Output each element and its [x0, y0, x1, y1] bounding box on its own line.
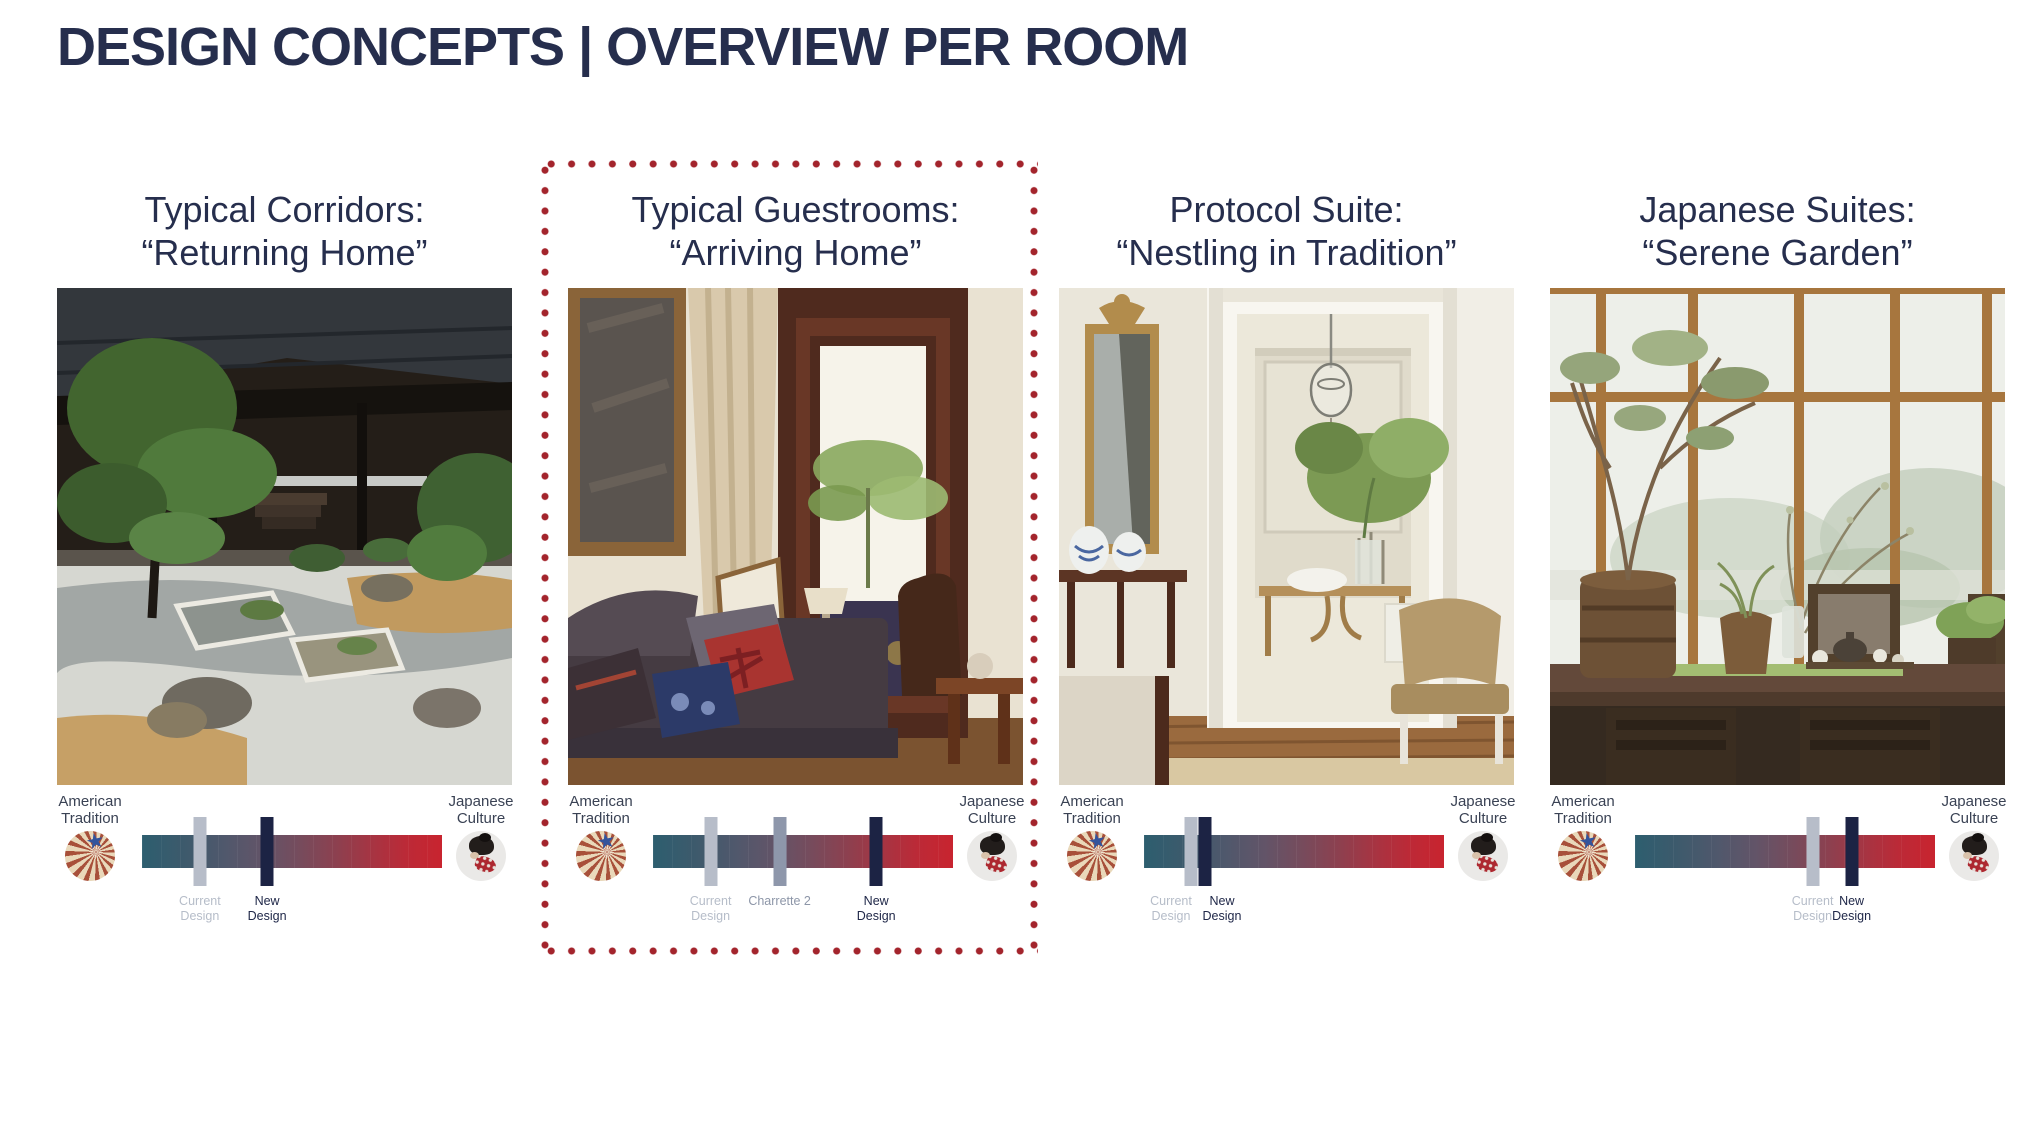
design-marker — [1845, 817, 1858, 886]
american-fan-icon: ★ — [1558, 831, 1608, 881]
scale-endpoint-american: American Tradition ★ — [1059, 794, 1125, 881]
column-title: Typical Corridors: “Returning Home” — [57, 188, 512, 274]
geisha-bun — [1481, 833, 1493, 842]
design-marker-label: New Design — [238, 894, 296, 924]
column-protocol-suite: Protocol Suite: “Nestling in Tradition” — [1059, 188, 1514, 940]
geisha-fan — [473, 854, 498, 875]
american-tradition-label: American Tradition — [568, 794, 634, 827]
scale-endpoint-japanese: Japanese Culture — [1452, 794, 1514, 881]
gradient-bar — [142, 835, 442, 868]
gradient-bar-area: Current Design New Design — [1635, 794, 1935, 940]
gradient-bar — [1635, 835, 1935, 868]
tradition-culture-scale: American Tradition ★ Current Design New … — [57, 794, 512, 940]
column-title-line2: “Nestling in Tradition” — [1059, 231, 1514, 274]
design-marker-label: Charrette 2 — [732, 894, 827, 909]
japanese-culture-label: Japanese Culture — [448, 794, 513, 827]
column-title-line1: Japanese Suites: — [1550, 188, 2005, 231]
tradition-culture-scale: American Tradition ★ Current Design New … — [1059, 794, 1514, 940]
american-tradition-label: American Tradition — [1059, 794, 1125, 827]
design-marker — [773, 817, 786, 886]
japanese-culture-label: Japanese Culture — [1450, 794, 1515, 827]
design-marker-label: New Design — [1193, 894, 1251, 924]
column-title: Japanese Suites: “Serene Garden” — [1550, 188, 2005, 274]
star-glyph: ★ — [595, 831, 618, 854]
japanese-geisha-icon — [1458, 831, 1508, 881]
dotted-border-left — [541, 160, 549, 955]
japanese-culture-label: Japanese Culture — [959, 794, 1024, 827]
gradient-bar-area: Current Design Charrette 2 New Design — [653, 794, 953, 940]
dotted-border-top — [541, 160, 1038, 168]
design-marker-label: Current Design — [1142, 894, 1200, 924]
japanese-geisha-icon — [967, 831, 1017, 881]
gradient-bar-area: Current Design New Design — [142, 794, 442, 940]
american-fan-icon: ★ — [576, 831, 626, 881]
column-title-line2: “Returning Home” — [57, 231, 512, 274]
photo-zen-garden — [57, 288, 512, 785]
gradient-bar — [653, 835, 953, 868]
column-japanese-suites: Japanese Suites: “Serene Garden” — [1550, 188, 2005, 940]
gradient-bar-area: Current Design New Design — [1144, 794, 1444, 940]
geisha-bun — [479, 833, 491, 842]
column-title-line2: “Serene Garden” — [1550, 231, 2005, 274]
scale-endpoint-japanese: Japanese Culture — [961, 794, 1023, 881]
design-marker — [870, 817, 883, 886]
geisha-bun — [1972, 833, 1984, 842]
scale-endpoint-japanese: Japanese Culture — [450, 794, 512, 881]
column-typical-corridors: Typical Corridors: “Returning Home” — [57, 188, 512, 940]
design-marker — [261, 817, 274, 886]
scale-endpoint-american: American Tradition ★ — [568, 794, 634, 881]
column-title: Protocol Suite: “Nestling in Tradition” — [1059, 188, 1514, 274]
photo-japanese-suite — [1550, 288, 2005, 785]
star-glyph: ★ — [1577, 831, 1600, 854]
design-marker-label: New Design — [1823, 894, 1881, 924]
column-title-line1: Protocol Suite: — [1059, 188, 1514, 231]
japanese-geisha-icon — [1949, 831, 1999, 881]
page-title: DESIGN CONCEPTS | OVERVIEW PER ROOM — [57, 16, 1188, 78]
japanese-culture-label: Japanese Culture — [1941, 794, 2006, 827]
design-marker-label: Current Design — [682, 894, 740, 924]
tradition-culture-scale: American Tradition ★ Current Design Char… — [568, 794, 1023, 940]
geisha-fan — [984, 854, 1009, 875]
dotted-border-bottom — [541, 947, 1038, 955]
column-title-line1: Typical Guestrooms: — [568, 188, 1023, 231]
photo-guestroom — [568, 288, 1023, 785]
star-glyph: ★ — [84, 831, 107, 854]
scale-endpoint-japanese: Japanese Culture — [1943, 794, 2005, 881]
american-tradition-label: American Tradition — [1550, 794, 1616, 827]
column-title-line2: “Arriving Home” — [568, 231, 1023, 274]
slide: DESIGN CONCEPTS | OVERVIEW PER ROOM Typi… — [0, 0, 2040, 1148]
american-fan-icon: ★ — [65, 831, 115, 881]
design-marker — [1198, 817, 1211, 886]
geisha-fan — [1966, 854, 1991, 875]
scale-endpoint-american: American Tradition ★ — [57, 794, 123, 881]
star-glyph: ★ — [1086, 831, 1109, 854]
geisha-bun — [990, 833, 1002, 842]
design-marker — [1185, 817, 1198, 886]
japanese-geisha-icon — [456, 831, 506, 881]
column-title-line1: Typical Corridors: — [57, 188, 512, 231]
column-typical-guestrooms: Typical Guestrooms: “Arriving Home” — [568, 188, 1023, 940]
geisha-fan — [1475, 854, 1500, 875]
design-marker — [1806, 817, 1819, 886]
column-title: Typical Guestrooms: “Arriving Home” — [568, 188, 1023, 274]
scale-endpoint-american: American Tradition ★ — [1550, 794, 1616, 881]
dotted-border-right — [1030, 160, 1038, 955]
design-marker-label: New Design — [847, 894, 905, 924]
design-marker — [704, 817, 717, 886]
design-marker-label: Current Design — [171, 894, 229, 924]
american-fan-icon: ★ — [1067, 831, 1117, 881]
photo-protocol-suite — [1059, 288, 1514, 785]
american-tradition-label: American Tradition — [57, 794, 123, 827]
tradition-culture-scale: American Tradition ★ Current Design New … — [1550, 794, 2005, 940]
design-marker — [193, 817, 206, 886]
